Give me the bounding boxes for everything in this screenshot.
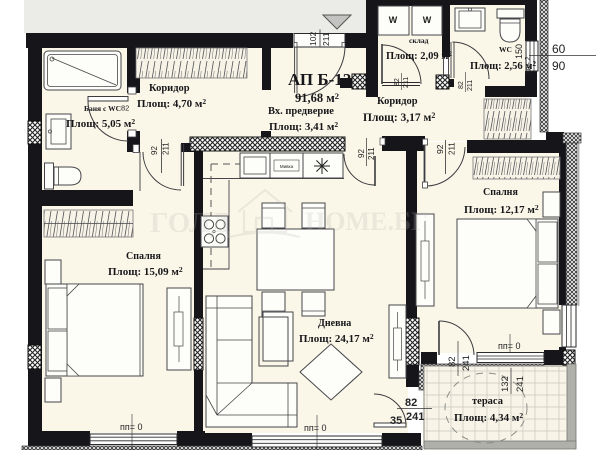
svg-text:Площ: 3,41 м2: Площ: 3,41 м2: [269, 120, 338, 133]
svg-text:60: 60: [552, 42, 566, 56]
svg-text:пп= 0: пп= 0: [498, 341, 521, 351]
svg-text:132: 132: [500, 376, 511, 392]
svg-text:Коридор: Коридор: [149, 83, 190, 94]
svg-text:150: 150: [514, 44, 524, 59]
svg-text:Баня с WC: Баня с WC: [84, 104, 121, 113]
svg-text:Спалня: Спалня: [483, 187, 518, 198]
svg-text:92: 92: [150, 146, 159, 155]
svg-text:92: 92: [357, 149, 366, 158]
svg-text:Спалня: Спалня: [126, 251, 161, 262]
svg-text:АП Б-12: АП Б-12: [288, 70, 351, 89]
svg-text:Площ: 4,70 м2: Площ: 4,70 м2: [137, 97, 206, 110]
svg-text:Площ: 3,17 м2: Площ: 3,17 м2: [363, 111, 435, 124]
svg-text:211: 211: [321, 32, 331, 46]
svg-text:90: 90: [552, 59, 566, 73]
svg-text:91,68 м2: 91,68 м2: [295, 91, 339, 105]
svg-text:НОМЕ.БГ: НОМЕ.БГ: [305, 207, 428, 236]
svg-text:82: 82: [394, 78, 401, 86]
svg-text:Площ: 15,09 м2: Площ: 15,09 м2: [108, 265, 183, 278]
svg-text:пп= 2: пп= 2: [525, 56, 532, 74]
svg-text:82: 82: [458, 81, 465, 89]
svg-text:пп= 0: пп= 0: [304, 423, 327, 433]
svg-text:211: 211: [162, 142, 171, 155]
svg-text:склад: склад: [409, 36, 429, 45]
svg-text:тераса: тераса: [472, 396, 504, 407]
svg-text:Коридор: Коридор: [377, 96, 418, 107]
svg-text:211: 211: [448, 142, 457, 155]
svg-text:Площ: 2,09 м2: Площ: 2,09 м2: [386, 50, 452, 62]
svg-text:пп= 0: пп= 0: [120, 422, 143, 432]
svg-text:241: 241: [461, 355, 472, 371]
svg-text:Площ: 5,05 м2: Площ: 5,05 м2: [66, 117, 135, 130]
svg-text:82: 82: [405, 397, 417, 409]
svg-text:Площ: 4,34 м2: Площ: 4,34 м2: [454, 411, 523, 424]
svg-text:Площ: 12,17 м2: Площ: 12,17 м2: [464, 203, 539, 216]
svg-text:ГОЛД: ГОЛД: [150, 207, 230, 239]
svg-text:W: W: [389, 15, 398, 25]
svg-text:Площ: 24,17 м2: Площ: 24,17 м2: [299, 332, 374, 345]
svg-text:W: W: [423, 15, 432, 25]
svg-text:82: 82: [447, 356, 458, 367]
svg-text:211: 211: [467, 80, 474, 91]
svg-text:241: 241: [515, 376, 526, 392]
svg-text:92: 92: [435, 144, 445, 154]
svg-text:Дневна: Дневна: [318, 318, 351, 329]
svg-text:Вх. предверие: Вх. предверие: [268, 106, 334, 117]
svg-text:102: 102: [308, 32, 318, 46]
svg-text:241: 241: [406, 411, 424, 423]
svg-text:211: 211: [403, 77, 410, 88]
svg-text:WC: WC: [499, 45, 512, 54]
svg-text:211: 211: [367, 147, 376, 160]
svg-text:Мивка: Мивка: [280, 164, 294, 169]
svg-text:35: 35: [390, 415, 402, 427]
svg-text:82: 82: [121, 104, 129, 113]
